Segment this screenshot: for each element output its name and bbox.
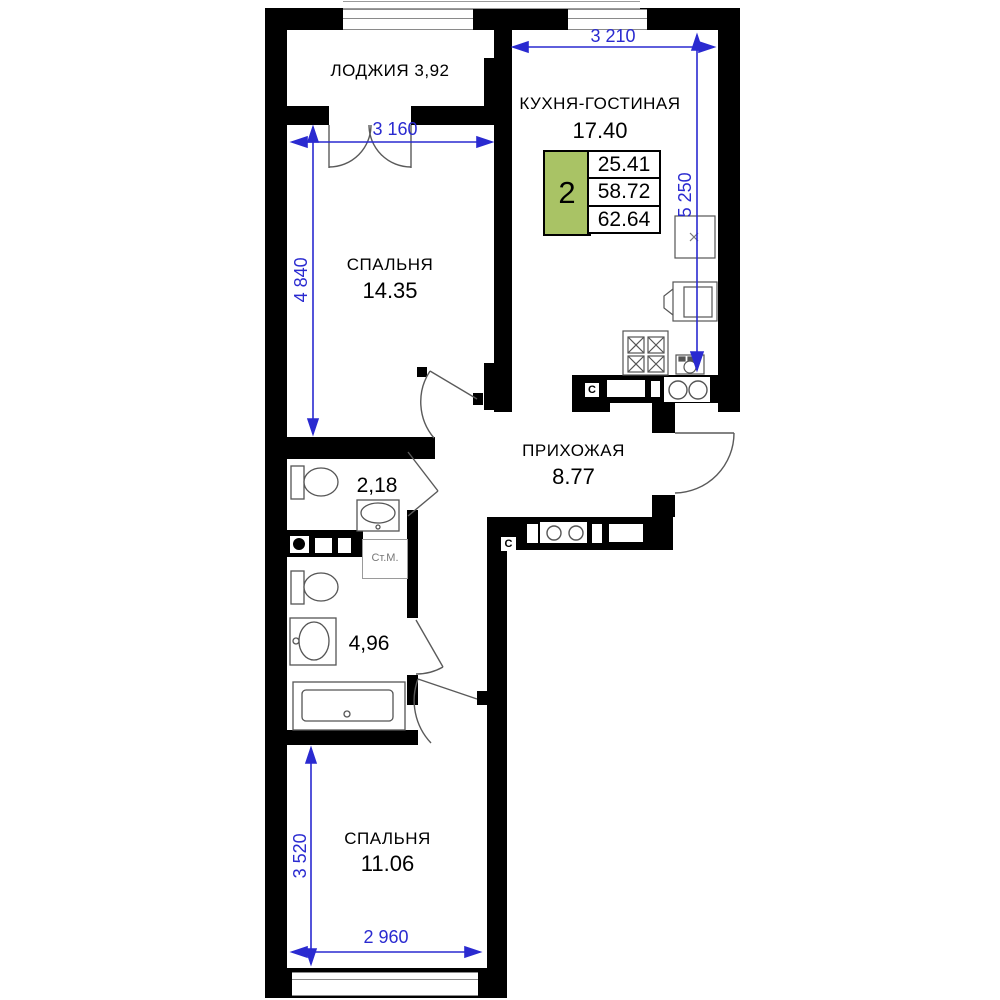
area-living-cell: 25.41: [587, 150, 661, 179]
dim-text-4840: 4 840: [292, 240, 312, 320]
dim-text-3210: 3 210: [573, 27, 653, 47]
kitchen-oven: [664, 282, 717, 321]
door-arc: [675, 433, 734, 493]
apartment-info-badge: 2 25.41 58.72 62.64: [543, 150, 661, 232]
sink-bowl-1: [669, 381, 687, 399]
label-bedroom-bottom-name: СПАЛЬНЯ: [290, 830, 485, 849]
toilet-wc-small: [291, 466, 338, 499]
dim-arrow: [292, 137, 307, 147]
area-apartment-cell: 58.72: [587, 177, 661, 207]
vent-kitchen: C: [585, 383, 599, 397]
washing-machine-label: Ст.М.: [363, 552, 407, 564]
sink-bowl-2: [689, 381, 707, 399]
dim-text-3160: 3 160: [355, 120, 435, 140]
rooms-count-cell: 2: [543, 150, 591, 236]
dim-arrow: [308, 127, 318, 142]
door-bedroom-bottom: [414, 679, 477, 743]
door-leaf: [418, 679, 477, 699]
toilet-bowl: [304, 468, 338, 496]
sink-tap: [293, 638, 299, 644]
door-arc: [421, 371, 434, 438]
label-bathroom-area: 4,96: [329, 632, 409, 655]
label-wc-small-area: 2,18: [337, 474, 417, 497]
label-loggia: ЛОДЖИЯ 3,92: [290, 62, 490, 81]
label-hallway-name: ПРИХОЖАЯ: [481, 442, 666, 461]
door-leaf: [430, 371, 477, 399]
shaft-bowl-1: [547, 526, 561, 540]
toilet-bowl: [304, 573, 338, 601]
area-total-cell: 62.64: [587, 205, 661, 234]
dim-text-2960: 2 960: [346, 928, 426, 948]
plan-linework: [0, 0, 1000, 1000]
door-leaf: [416, 620, 443, 667]
loggia-name: ЛОДЖИЯ: [330, 61, 409, 80]
label-bedroom-bottom-area: 11.06: [290, 852, 485, 876]
sink-basin: [299, 622, 329, 660]
dim-text-3520: 3 520: [291, 816, 311, 896]
door-bathroom: [416, 620, 443, 674]
door-entrance: [675, 433, 734, 493]
dim-arrow: [477, 137, 492, 147]
wall-double-sink: [669, 381, 707, 399]
toilet-tank: [291, 571, 304, 604]
shaft-bowl-2: [569, 526, 583, 540]
label-hallway-area: 8.77: [481, 465, 666, 489]
loggia-area: 3,92: [414, 61, 449, 80]
toilet-bathroom: [291, 571, 338, 604]
floor-plan: ЛОДЖИЯ 3,92 КУХНЯ-ГОСТИНАЯ 17.40 СПАЛЬНЯ…: [0, 0, 1000, 1000]
label-kitchen-name: КУХНЯ-ГОСТИНАЯ: [510, 95, 690, 114]
oven-handle: [664, 289, 673, 315]
sink-wc-small: [357, 500, 399, 531]
vent-hall: C: [501, 537, 516, 551]
door-bedroom-top: [421, 371, 477, 438]
door-arc: [414, 679, 431, 743]
toilet-tank: [291, 466, 304, 499]
dim-arrow: [513, 42, 528, 52]
label-bedroom-top-area: 14.35: [290, 279, 490, 303]
dim-arrow: [465, 947, 480, 957]
dim-arrow: [308, 419, 318, 434]
dim-text-5250: 5 250: [676, 155, 696, 235]
label-kitchen-area: 17.40: [510, 119, 690, 143]
dim-arrow: [292, 947, 307, 957]
hall-shaft-sinks: [547, 526, 583, 540]
bathtub-drain: [344, 711, 350, 717]
sink-basin: [361, 503, 395, 523]
label-bedroom-top-name: СПАЛЬНЯ: [290, 256, 490, 275]
sink-tap: [376, 525, 380, 529]
riser-dot: [293, 538, 305, 550]
door-arc: [416, 667, 443, 674]
unit-knob-1: [679, 357, 685, 361]
bathtub: [293, 682, 405, 730]
kitchen-stove: [623, 331, 668, 375]
washing-machine-box: Ст.М.: [362, 539, 408, 579]
oven-inner: [684, 287, 712, 317]
dim-arrow: [306, 748, 316, 763]
